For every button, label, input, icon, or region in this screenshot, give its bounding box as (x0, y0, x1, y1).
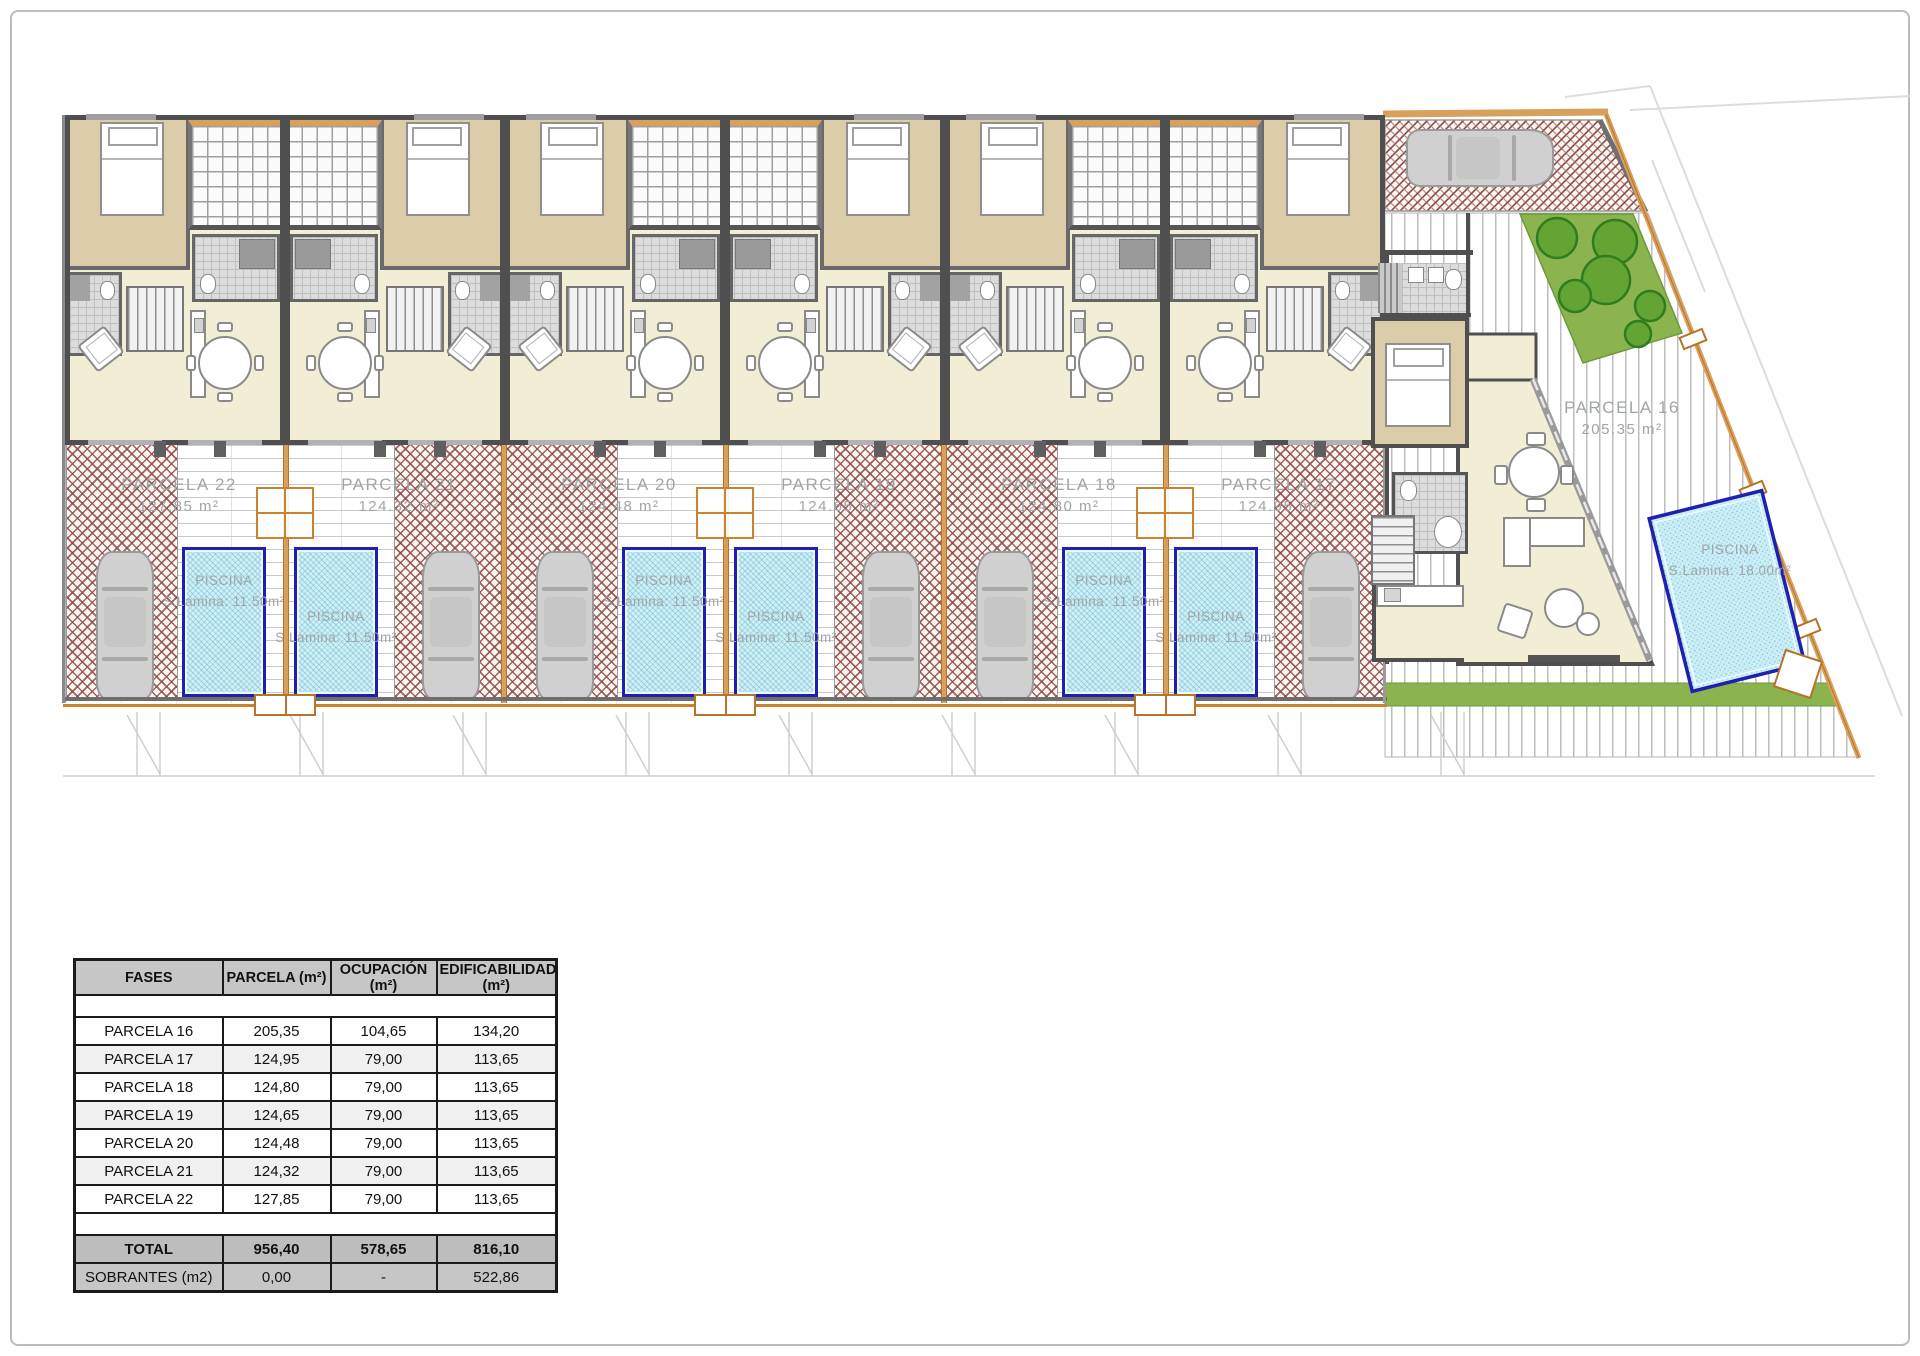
car-icon (1302, 551, 1360, 701)
dining-table-icon (1078, 336, 1132, 390)
table-row: PARCELA 17124,95 79,00113,65 (75, 1045, 557, 1073)
porch-post (814, 441, 826, 457)
page: PISCINA S.Lamina: 11.50m² PARCELA 22 127… (0, 0, 1920, 1356)
table-row: PARCELA 22127,85 79,00113,65 (75, 1185, 557, 1213)
tv-bench-icon (1528, 655, 1620, 662)
porch-post (594, 441, 606, 457)
bedroom (950, 120, 1070, 270)
porch-post (874, 441, 886, 457)
bedroom (510, 120, 630, 270)
porch-post (214, 441, 226, 457)
window (854, 114, 924, 120)
parcel-label: PARCELA 22 127.85 m² (94, 475, 264, 515)
fence (283, 445, 289, 703)
bedroom (820, 120, 940, 270)
bed-icon (1385, 343, 1451, 427)
chair-icon (657, 322, 673, 332)
car-icon (422, 551, 480, 701)
bed-icon (540, 122, 604, 216)
window (966, 114, 1036, 120)
pool-label: PISCINA S.Lamina: 11.50m² (1126, 607, 1306, 649)
stairs (1266, 286, 1324, 352)
shower-icon (510, 275, 530, 301)
parcel-yard: PISCINA S.Lamina: 11.50m² PARCELA 19 124… (725, 445, 946, 703)
pool-label: PISCINA S.Lamina: 11.50m² (686, 607, 866, 649)
dining-table-icon (638, 336, 692, 390)
porch-post (1094, 441, 1106, 457)
surface-table: FASES PARCELA (m²) OCUPACIÓN (m²) EDIFIC… (73, 958, 558, 1293)
car-icon (1406, 129, 1554, 187)
table-sobrantes-row: SOBRANTES (m2)0,00 -522,86 (75, 1263, 557, 1292)
toilet-icon (794, 274, 810, 294)
front-gate (694, 694, 756, 716)
toilet-icon (455, 281, 470, 300)
chair-icon (186, 355, 196, 371)
patio-skylight (730, 120, 822, 230)
chair-icon (1097, 392, 1113, 402)
boundary-top-line (1383, 112, 1608, 114)
toilet-icon (1400, 480, 1417, 501)
toilet-icon (540, 281, 555, 300)
toilet-icon (980, 281, 995, 300)
fence (501, 445, 507, 703)
house-unit (1165, 115, 1385, 445)
bathroom (1170, 234, 1258, 302)
dining-table-icon (198, 336, 252, 390)
fence (1163, 445, 1169, 703)
bed-icon (980, 122, 1044, 216)
bedroom (1371, 317, 1469, 448)
col-header-ocupacion: OCUPACIÓN (m²) (331, 960, 437, 996)
chair-icon (814, 355, 824, 371)
shower-icon (1119, 239, 1155, 269)
shower-icon (920, 275, 940, 301)
toilet-icon (1080, 274, 1096, 294)
garden-gate (256, 487, 314, 539)
chair-icon (1097, 322, 1113, 332)
chair-icon (626, 355, 636, 371)
front-gate (1134, 694, 1196, 716)
chair-icon (254, 355, 264, 371)
bathroom (1378, 263, 1466, 313)
parcel-label: PARCELA 16 205.35 m² (1532, 398, 1712, 438)
chair-icon (1526, 498, 1546, 512)
chair-icon (777, 322, 793, 332)
pool-label: PISCINA S.Lamina: 18.00m² (1630, 540, 1830, 582)
dining-table-icon (1198, 336, 1252, 390)
bathroom (632, 234, 720, 302)
kitchen (1372, 585, 1464, 662)
patio-skylight (1068, 120, 1160, 230)
shower-icon (950, 275, 970, 301)
patio-skylight (628, 120, 720, 230)
stairs (1371, 515, 1415, 585)
fence (941, 445, 947, 703)
bathroom (192, 234, 280, 302)
bed-icon (1286, 122, 1350, 216)
bathroom (1072, 234, 1160, 302)
sofa-icon (1503, 517, 1531, 567)
shower-icon (1175, 239, 1211, 269)
bed-icon (100, 122, 164, 216)
shower-icon (295, 239, 331, 269)
fence (723, 445, 729, 703)
stairs (566, 286, 624, 352)
front-gate (254, 694, 316, 716)
dining-table-icon (758, 336, 812, 390)
chair-icon (657, 392, 673, 402)
chair-icon (337, 392, 353, 402)
chair-icon (1186, 355, 1196, 371)
chair-icon (746, 355, 756, 371)
bed-icon (406, 122, 470, 216)
toilet-icon (100, 281, 115, 300)
bedroom (380, 120, 500, 270)
house-unit (65, 115, 285, 445)
garden-strip (1385, 683, 1839, 706)
garden-gate (696, 487, 754, 539)
porch-post (154, 441, 166, 457)
patio-skylight (290, 120, 382, 230)
col-header-edificabilidad: EDIFICABILIDAD (m²) (437, 960, 557, 996)
chair-icon (1560, 465, 1574, 485)
chair-icon (694, 355, 704, 371)
stairs (1006, 286, 1064, 352)
house-unit (945, 115, 1165, 445)
toilet-icon (1445, 269, 1462, 290)
site-left-boundary (62, 115, 65, 703)
chair-icon (1217, 392, 1233, 402)
toilet-icon (1234, 274, 1250, 294)
porch-post (1034, 441, 1046, 457)
basin-icon (1428, 267, 1444, 283)
dining-table-icon (1508, 446, 1560, 498)
chair-icon (337, 322, 353, 332)
col-header-parcela: PARCELA (m²) (223, 960, 331, 996)
table-row: PARCELA 16205,35 104,65134,20 (75, 1017, 557, 1045)
bedroom (1260, 120, 1380, 270)
shower-icon (1434, 516, 1462, 548)
window (86, 114, 156, 120)
chair-icon (1217, 322, 1233, 332)
coffee-table-icon (1576, 612, 1600, 636)
stairs (386, 286, 444, 352)
chair-icon (217, 322, 233, 332)
bathroom (290, 234, 378, 302)
patio-skylight (188, 120, 280, 230)
toilet-icon (640, 274, 656, 294)
chair-icon (777, 392, 793, 402)
parcel-label: PARCELA 19 124.65 m² (754, 475, 924, 515)
chair-icon (1494, 465, 1508, 485)
parcel-yard: PISCINA S.Lamina: 11.50m² PARCELA 21 124… (285, 445, 506, 703)
house-unit (505, 115, 725, 445)
shower-icon (70, 275, 90, 301)
chair-icon (306, 355, 316, 371)
table-row: PARCELA 21124,32 79,00113,65 (75, 1157, 557, 1185)
stairs (126, 286, 184, 352)
chair-icon (1066, 355, 1076, 371)
bathroom (730, 234, 818, 302)
parcel-yard: PISCINA S.Lamina: 11.50m² PARCELA 20 124… (505, 445, 726, 703)
basin-icon (1408, 267, 1424, 283)
table-row: PARCELA 20124,48 79,00113,65 (75, 1129, 557, 1157)
porch-post (434, 441, 446, 457)
house-unit (285, 115, 505, 445)
pool-label: PISCINA S.Lamina: 11.50m² (246, 607, 426, 649)
shower-icon (735, 239, 771, 269)
parcel-yard: PISCINA S.Lamina: 11.50m² PARCELA 17 124… (1165, 445, 1386, 703)
toilet-icon (895, 281, 910, 300)
col-header-fases: FASES (75, 960, 223, 996)
dining-table-icon (318, 336, 372, 390)
patio-skylight (1170, 120, 1262, 230)
shower-icon (239, 239, 275, 269)
porch-post (1254, 441, 1266, 457)
car-icon (862, 551, 920, 701)
parcel-label: PARCELA 18 124.80 m² (974, 475, 1144, 515)
house-unit (725, 115, 945, 445)
window (1294, 114, 1364, 120)
parcel-yard: PISCINA S.Lamina: 11.50m² PARCELA 18 124… (945, 445, 1166, 703)
toilet-icon (354, 274, 370, 294)
chair-icon (217, 392, 233, 402)
toilet-icon (1335, 281, 1350, 300)
garden-gate (1136, 487, 1194, 539)
parcel-label: PARCELA 20 124.48 m² (534, 475, 704, 515)
shower-icon (1360, 275, 1380, 301)
wall (1385, 250, 1473, 255)
porch-post (374, 441, 386, 457)
parcel-label: PARCELA 17 124.95 m² (1194, 475, 1364, 515)
parcel-yard: PISCINA S.Lamina: 11.50m² PARCELA 22 127… (65, 445, 286, 703)
spacer-row (75, 1213, 557, 1235)
chair-icon (1254, 355, 1264, 371)
wall (1466, 213, 1470, 313)
table-total-row: TOTAL956,40 578,65816,10 (75, 1235, 557, 1263)
porch-post (654, 441, 666, 457)
table-row: PARCELA 18124,80 79,00113,65 (75, 1073, 557, 1101)
bedroom (70, 120, 190, 270)
table-row: PARCELA 19124,65 79,00113,65 (75, 1101, 557, 1129)
stairs (826, 286, 884, 352)
chair-icon (374, 355, 384, 371)
window (526, 114, 596, 120)
shower-icon (1378, 263, 1402, 313)
shower-icon (480, 275, 500, 301)
parcel-label: PARCELA 21 124.32 m² (314, 475, 484, 515)
shower-icon (679, 239, 715, 269)
window (414, 114, 484, 120)
bed-icon (846, 122, 910, 216)
chair-icon (1134, 355, 1144, 371)
porch-post (1314, 441, 1326, 457)
table-header-row: FASES PARCELA (m²) OCUPACIÓN (m²) EDIFIC… (75, 960, 557, 996)
toilet-icon (200, 274, 216, 294)
spacer-row (75, 995, 557, 1017)
